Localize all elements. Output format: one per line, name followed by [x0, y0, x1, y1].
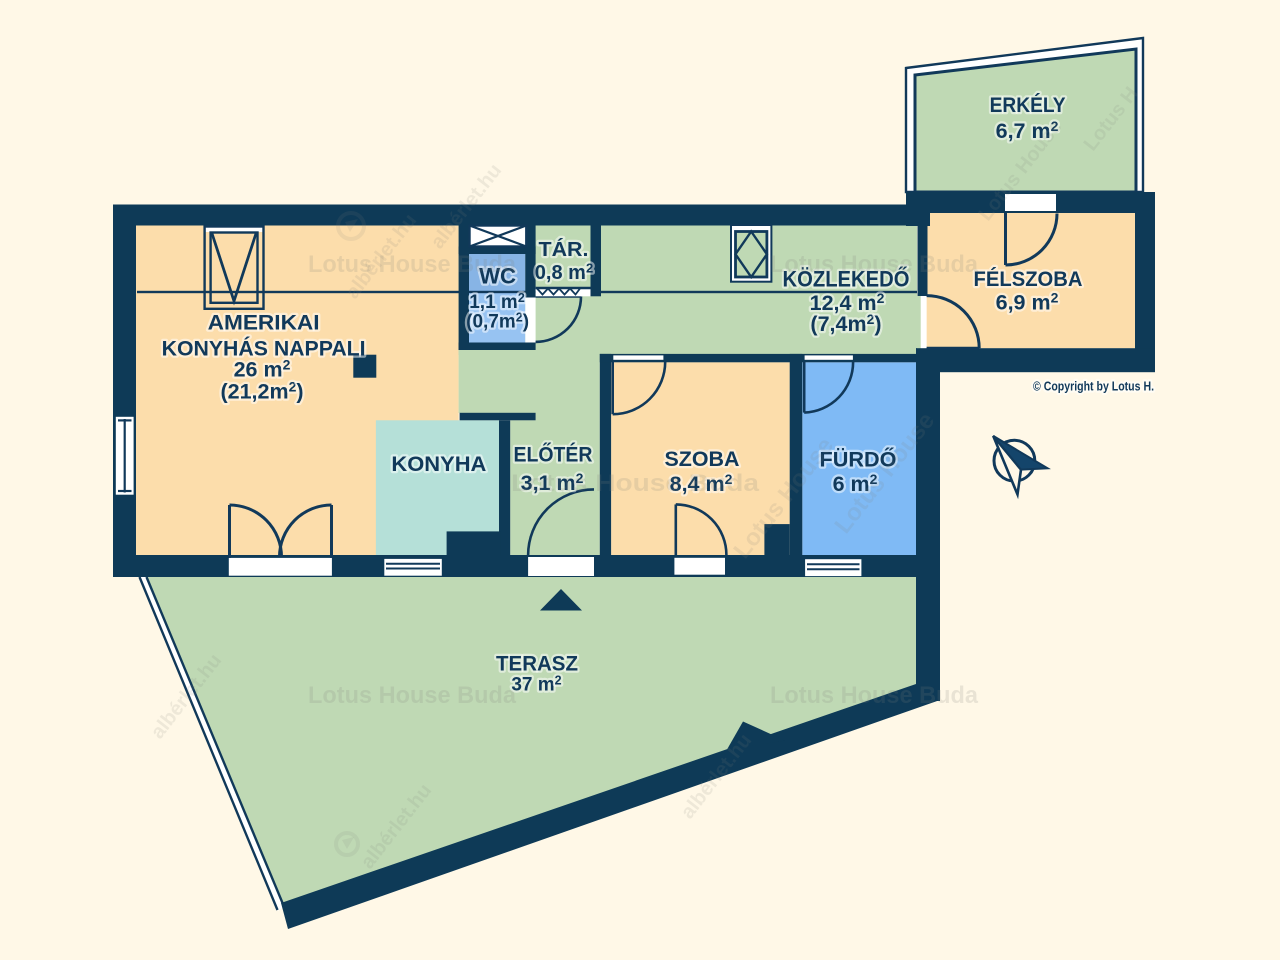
svg-text:37 m2: 37 m2: [511, 674, 561, 696]
svg-text:TÁR.: TÁR.: [539, 238, 589, 261]
svg-text:Lotus House Buda: Lotus House Buda: [308, 682, 517, 709]
svg-text:TERASZ: TERASZ: [496, 652, 578, 676]
svg-text:26 m2: 26 m2: [234, 357, 291, 382]
svg-text:AMERIKAI: AMERIKAI: [208, 311, 320, 335]
svg-text:© Copyright by Lotus H.: © Copyright by Lotus H.: [1033, 380, 1154, 394]
svg-text:0,8 m2: 0,8 m2: [535, 260, 593, 284]
svg-text:KONYHA: KONYHA: [391, 452, 486, 476]
svg-text:ERKÉLY: ERKÉLY: [990, 92, 1066, 117]
svg-text:FÉLSZOBA: FÉLSZOBA: [974, 266, 1083, 291]
svg-text:6,9 m2: 6,9 m2: [996, 290, 1059, 315]
svg-text:Lotus House Buda: Lotus House Buda: [770, 682, 979, 709]
svg-text:SZOBA: SZOBA: [665, 447, 740, 471]
svg-text:Lotus House Buda: Lotus House Buda: [770, 251, 979, 278]
svg-text:ELŐTÉR: ELŐTÉR: [514, 442, 593, 467]
svg-text:Lotus House Buda: Lotus House Buda: [511, 470, 760, 497]
svg-text:Lotus House Buda: Lotus House Buda: [308, 251, 517, 278]
